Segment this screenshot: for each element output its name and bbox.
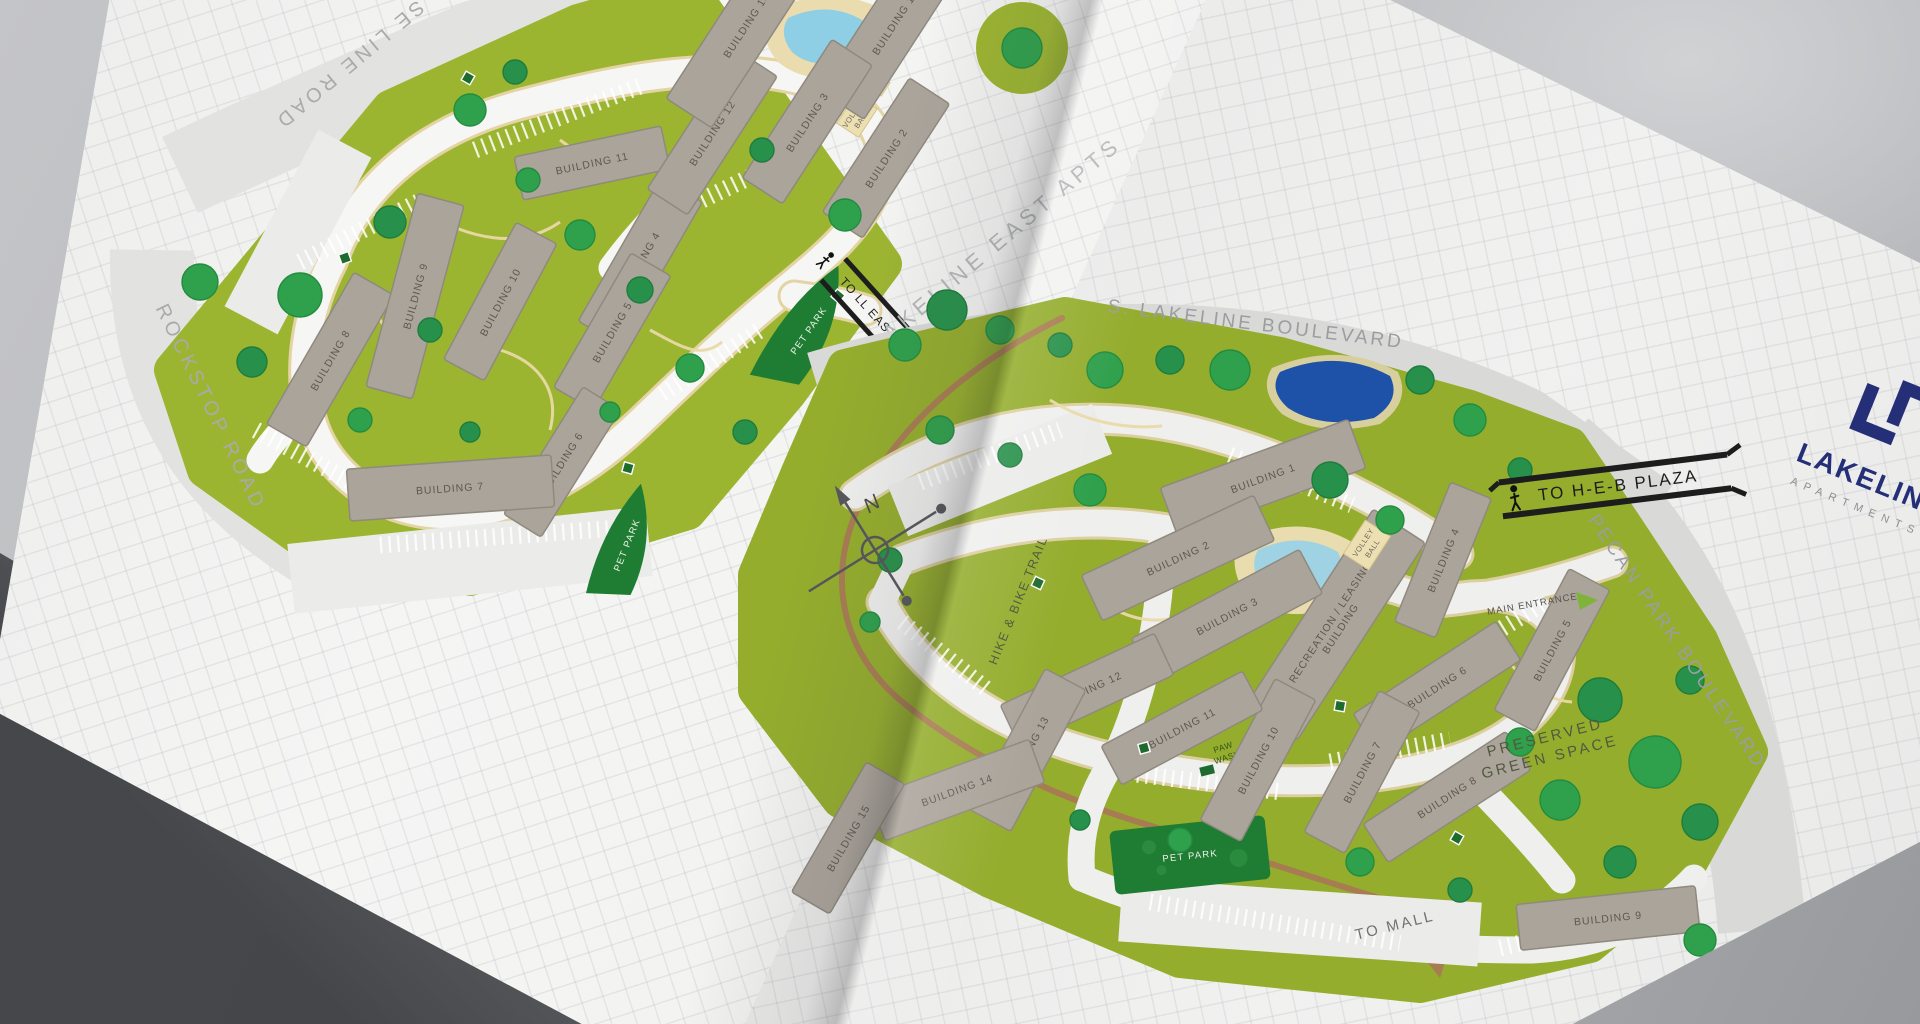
tree-icon xyxy=(926,416,954,444)
tree-icon xyxy=(1312,462,1348,498)
tree-icon xyxy=(1406,366,1434,394)
brochure-photo: PET PARK PET PARK VOLLEY BALL G xyxy=(0,0,1920,1024)
tree-icon xyxy=(348,408,372,432)
tree-icon xyxy=(1070,810,1090,830)
tree-icon xyxy=(1074,474,1106,506)
tree-icon xyxy=(503,60,527,84)
dumpster-icon xyxy=(1334,700,1346,712)
tree-icon xyxy=(1629,736,1681,788)
tree-icon xyxy=(1168,828,1192,852)
tree-icon xyxy=(237,347,267,377)
tree-icon xyxy=(182,264,218,300)
tree-icon xyxy=(1376,506,1404,534)
tree-icon xyxy=(1048,333,1072,357)
tree-icon xyxy=(1448,878,1472,902)
tree-icon xyxy=(1540,780,1580,820)
right-site-map: PET PARK PAW WASH RECREATION / LEASING B… xyxy=(756,290,1770,985)
tree-icon xyxy=(1210,350,1250,390)
tree-icon xyxy=(600,402,620,422)
tree-icon xyxy=(676,354,704,382)
tree-icon xyxy=(460,422,480,442)
tree-icon xyxy=(998,443,1022,467)
dumpster-icon xyxy=(622,462,634,474)
tree-icon xyxy=(1684,924,1716,956)
tree-icon xyxy=(733,420,757,444)
brochure-logo: LAKELINE APARTMENTS xyxy=(1785,368,1920,543)
tree-icon xyxy=(1454,404,1486,436)
tree-icon xyxy=(829,199,861,231)
tree-icon xyxy=(750,138,774,162)
tree-icon xyxy=(374,206,406,238)
tree-icon xyxy=(627,277,653,303)
tree-icon xyxy=(1087,352,1123,388)
tree-icon xyxy=(1682,804,1718,840)
logo-mark-icon xyxy=(1849,368,1920,456)
tree-icon xyxy=(1346,848,1374,876)
dumpster-icon xyxy=(1138,742,1150,754)
tree-icon xyxy=(565,220,595,250)
tree-icon xyxy=(278,273,322,317)
tree-icon xyxy=(1156,346,1184,374)
tree-icon xyxy=(418,318,442,342)
tree-icon xyxy=(1604,846,1636,878)
tree-icon xyxy=(860,612,880,632)
tree-icon xyxy=(889,329,921,361)
tree-icon xyxy=(986,316,1014,344)
logo-text: LAKELINE APARTMENTS xyxy=(1785,437,1920,544)
tree-icon xyxy=(927,290,967,330)
tree-icon xyxy=(516,168,540,192)
tree-icon xyxy=(454,94,486,126)
tree-icon xyxy=(1002,28,1042,68)
